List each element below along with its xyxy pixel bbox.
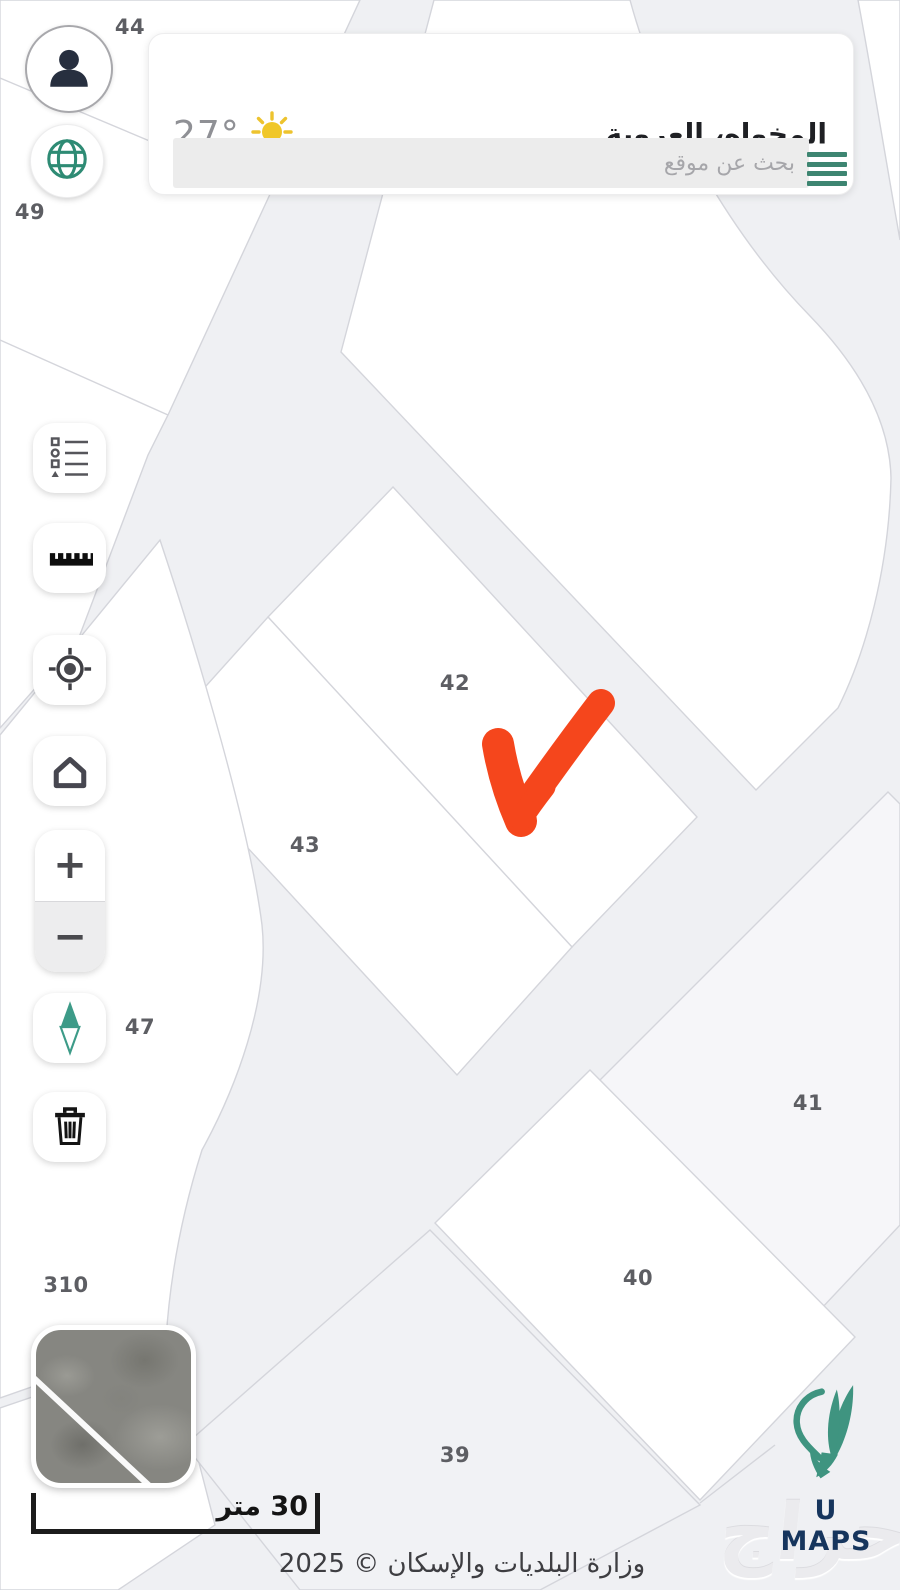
legend-list-icon — [48, 435, 92, 482]
zoom-control: + − — [35, 830, 105, 972]
parcel-label-43: 43 — [290, 833, 320, 857]
parcel-label-310: 310 — [43, 1273, 88, 1297]
person-icon — [44, 42, 94, 96]
header-card: 27° المخواه، العروبة — [148, 33, 854, 195]
umaps-logo: U MAPS — [770, 1383, 882, 1557]
zoom-out-button[interactable]: − — [35, 902, 105, 973]
home-button[interactable] — [33, 736, 106, 806]
parcel-label-49: 49 — [15, 200, 45, 224]
globe-icon — [44, 136, 90, 186]
map-screen: 4449424347414039310 27° المخواه، العروبة — [0, 0, 900, 1590]
parcel-label-42: 42 — [440, 671, 470, 695]
parcel-label-44: 44 — [115, 15, 145, 39]
umaps-pin-icon — [787, 1472, 865, 1491]
language-globe-button[interactable] — [30, 124, 104, 198]
satellite-minimap-toggle[interactable] — [31, 1325, 196, 1488]
umaps-logo-text: U MAPS — [770, 1495, 882, 1557]
parcel-label-39: 39 — [440, 1443, 470, 1467]
parcel-label-41: 41 — [793, 1091, 823, 1115]
copyright-text: وزارة البلديات والإسكان © 2025 — [279, 1549, 645, 1579]
menu-hamburger-icon[interactable] — [807, 152, 847, 186]
crosshair-gps-icon — [47, 646, 93, 695]
avatar[interactable] — [25, 25, 113, 113]
north-diamond-icon — [54, 998, 86, 1059]
delete-button[interactable] — [33, 1092, 106, 1162]
trash-icon — [49, 1105, 91, 1150]
scale-line — [31, 1529, 320, 1534]
parcel-label-40: 40 — [623, 1266, 653, 1290]
scale-tick-right — [315, 1493, 320, 1534]
scale-tick-left — [31, 1493, 36, 1534]
scale-bar: 30 متر — [31, 1493, 320, 1534]
scale-label: 30 متر — [216, 1491, 308, 1522]
legend-button[interactable] — [33, 423, 106, 493]
compass-button[interactable] — [33, 993, 106, 1063]
search-input[interactable] — [173, 138, 809, 188]
locate-button[interactable] — [33, 635, 106, 705]
measure-button[interactable] — [33, 523, 106, 593]
ruler-icon — [47, 534, 93, 583]
parcel-label-47: 47 — [125, 1015, 155, 1039]
home-icon — [48, 748, 92, 795]
zoom-in-button[interactable]: + — [35, 830, 105, 902]
